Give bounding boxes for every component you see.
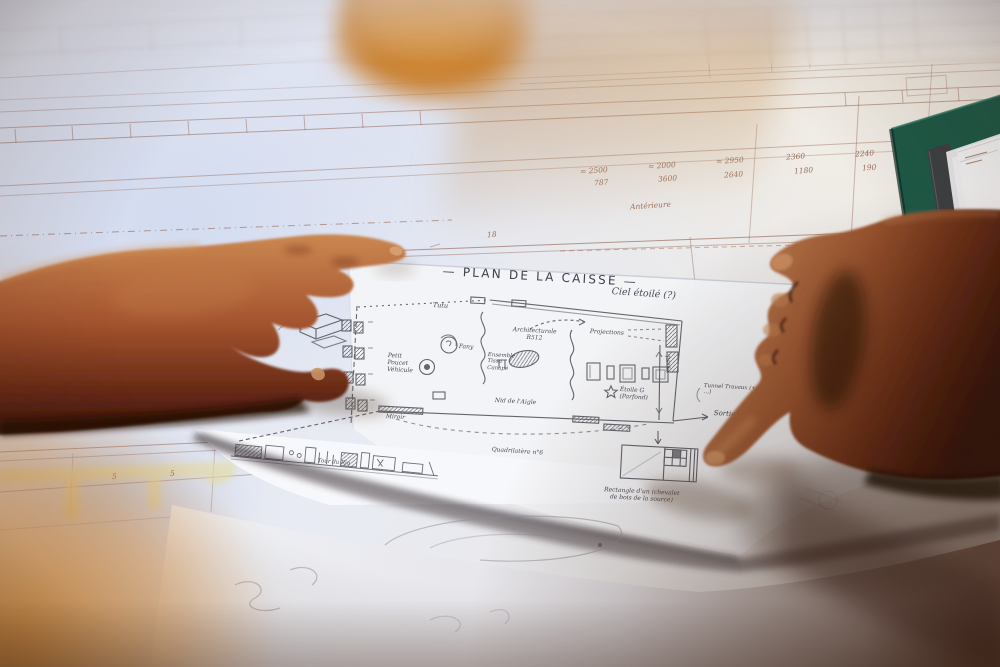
left-hand [0, 234, 415, 436]
right-hand [642, 209, 1000, 667]
right-fingertip-highlight [705, 451, 725, 465]
photo-stage: — PLAN DE LA CAISSE — Ciel étoilé (?) Tu… [0, 0, 1000, 667]
top-blur-veil [0, 0, 1000, 64]
scene-upper [0, 0, 1000, 667]
